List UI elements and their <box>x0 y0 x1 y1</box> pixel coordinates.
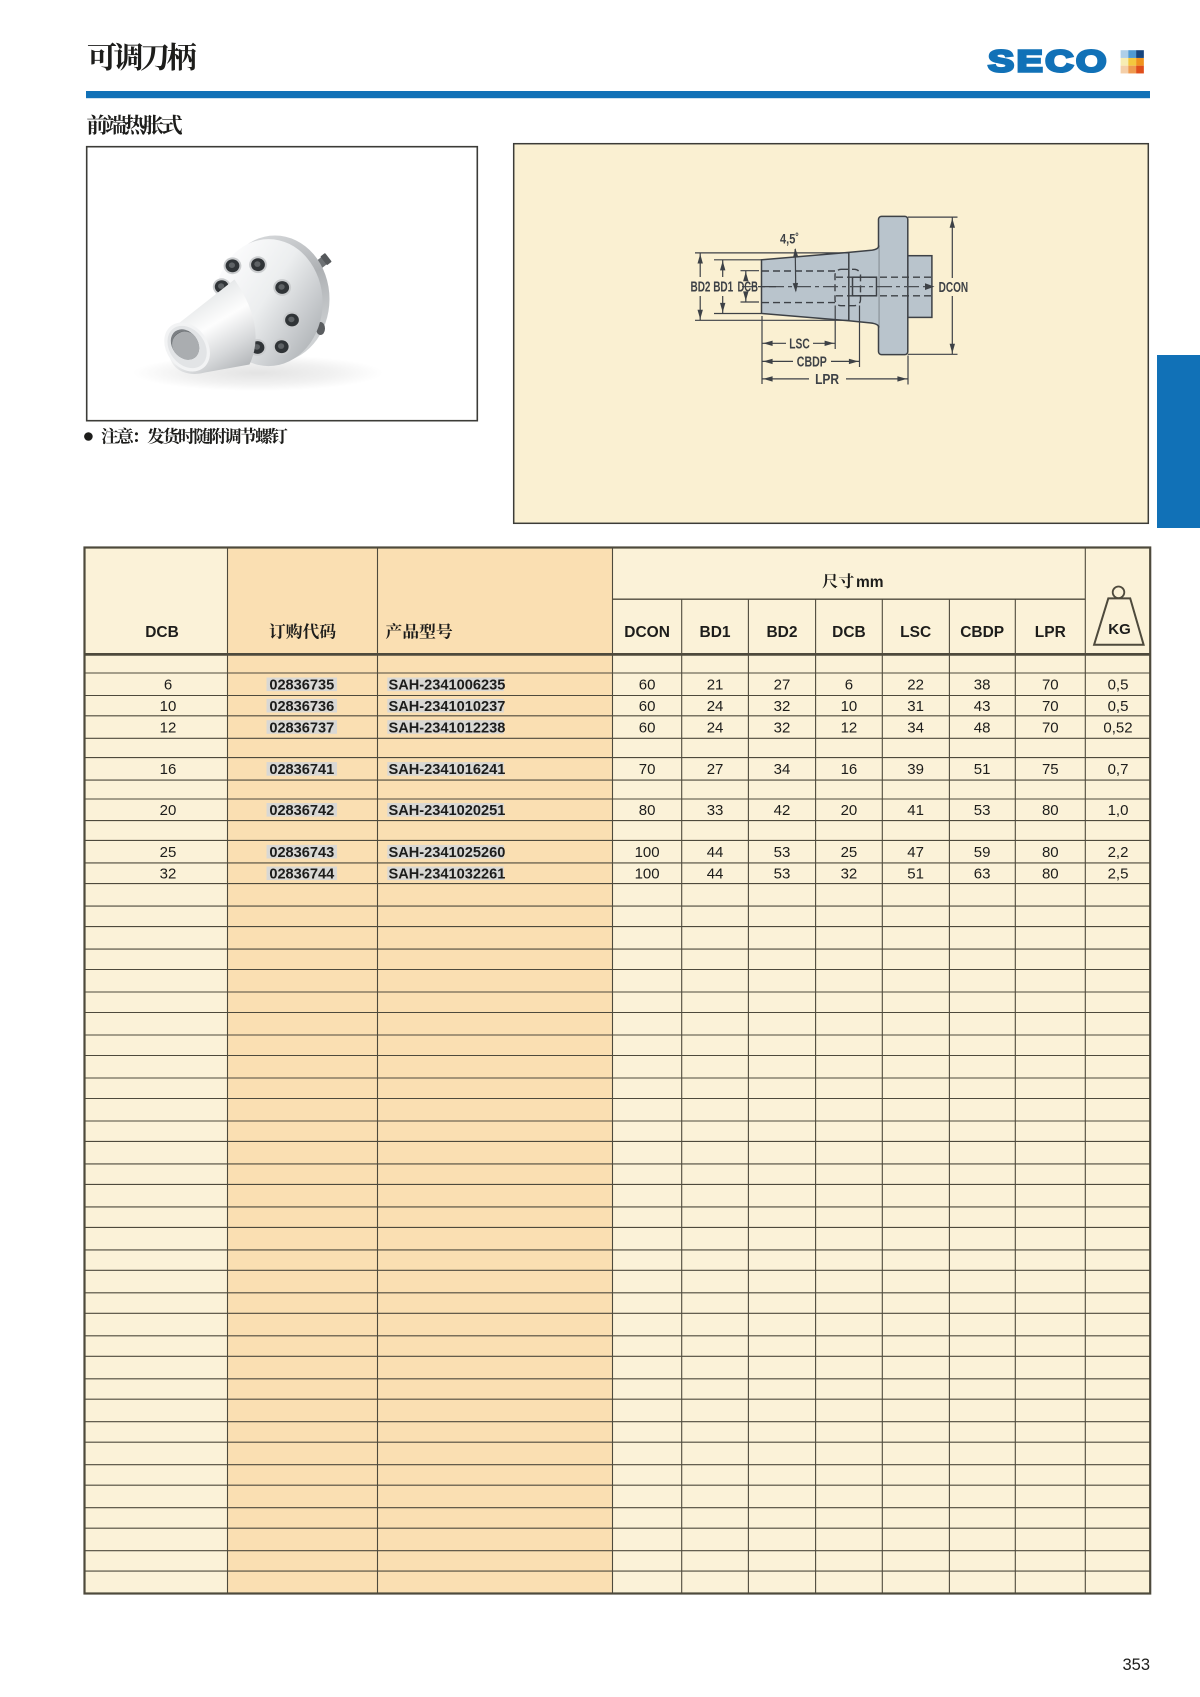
svg-text:33: 33 <box>707 802 724 819</box>
svg-text:2,2: 2,2 <box>1108 844 1129 861</box>
svg-text:LSC: LSC <box>789 336 810 352</box>
svg-text:LPR: LPR <box>1035 624 1066 641</box>
svg-text:59: 59 <box>974 844 991 861</box>
svg-text:0,7: 0,7 <box>1108 761 1129 778</box>
svg-text:02836737: 02836737 <box>269 720 334 736</box>
svg-text:32: 32 <box>774 719 791 736</box>
svg-text:80: 80 <box>639 802 656 819</box>
svg-text:75: 75 <box>1042 761 1059 778</box>
svg-text:63: 63 <box>974 866 991 883</box>
svg-text:02836735: 02836735 <box>269 678 334 694</box>
svg-text:47: 47 <box>907 844 924 861</box>
svg-text:SECO: SECO <box>988 45 1109 79</box>
svg-text:SAH-2341032261: SAH-2341032261 <box>389 867 506 883</box>
svg-text:SAH-2341012238: SAH-2341012238 <box>389 720 506 736</box>
svg-text:27: 27 <box>774 677 791 694</box>
svg-text:SAH-2341020251: SAH-2341020251 <box>389 803 506 819</box>
svg-text:80: 80 <box>1042 802 1059 819</box>
svg-text:34: 34 <box>907 719 924 736</box>
svg-text:2,5: 2,5 <box>1108 866 1129 883</box>
svg-text:53: 53 <box>774 866 791 883</box>
svg-text:CBDP: CBDP <box>960 624 1004 641</box>
svg-text:mm: mm <box>856 574 884 591</box>
svg-text:70: 70 <box>639 761 656 778</box>
svg-text:DCON: DCON <box>939 280 969 296</box>
svg-text:6: 6 <box>845 677 853 694</box>
svg-text:44: 44 <box>707 866 724 883</box>
svg-text:SAH-2341006235: SAH-2341006235 <box>389 678 506 694</box>
svg-text:LPR: LPR <box>815 372 839 388</box>
svg-text:0,5: 0,5 <box>1108 677 1129 694</box>
svg-text:60: 60 <box>639 719 656 736</box>
svg-text:SAH-2341010237: SAH-2341010237 <box>389 699 506 715</box>
svg-text:KG: KG <box>1108 621 1131 638</box>
svg-text:16: 16 <box>841 761 858 778</box>
svg-text:02836741: 02836741 <box>269 762 334 778</box>
svg-text:51: 51 <box>974 761 991 778</box>
svg-text:20: 20 <box>841 802 858 819</box>
svg-text:1,0: 1,0 <box>1108 802 1129 819</box>
svg-text:SAH-2341025260: SAH-2341025260 <box>389 845 506 861</box>
svg-text:12: 12 <box>160 719 177 736</box>
svg-text:70: 70 <box>1042 677 1059 694</box>
svg-text:DCB: DCB <box>737 280 758 296</box>
svg-text:80: 80 <box>1042 844 1059 861</box>
svg-text:20: 20 <box>160 802 177 819</box>
svg-text:12: 12 <box>841 719 858 736</box>
svg-text:SAH-2341016241: SAH-2341016241 <box>389 762 506 778</box>
svg-text:32: 32 <box>774 698 791 715</box>
svg-text:34: 34 <box>774 761 791 778</box>
svg-text:24: 24 <box>707 698 724 715</box>
svg-text:02836742: 02836742 <box>269 803 334 819</box>
svg-text:LSC: LSC <box>900 624 931 641</box>
svg-text:70: 70 <box>1042 719 1059 736</box>
svg-text:53: 53 <box>974 802 991 819</box>
svg-text:BD1: BD1 <box>713 280 733 296</box>
svg-text:DCON: DCON <box>624 624 670 641</box>
svg-text:39: 39 <box>907 761 924 778</box>
svg-text:21: 21 <box>707 677 724 694</box>
svg-text:80: 80 <box>1042 866 1059 883</box>
svg-text:31: 31 <box>907 698 924 715</box>
svg-text:60: 60 <box>639 698 656 715</box>
svg-text:48: 48 <box>974 719 991 736</box>
svg-text:60: 60 <box>639 677 656 694</box>
svg-text:38: 38 <box>974 677 991 694</box>
svg-text:10: 10 <box>160 698 177 715</box>
svg-text:02836744: 02836744 <box>269 867 335 883</box>
svg-text:DCB: DCB <box>832 624 866 641</box>
svg-text:42: 42 <box>774 802 791 819</box>
svg-text:02836743: 02836743 <box>269 845 334 861</box>
svg-text:22: 22 <box>907 677 924 694</box>
svg-text:4,5˚: 4,5˚ <box>780 230 799 246</box>
svg-text:BD2: BD2 <box>691 280 711 296</box>
svg-text:53: 53 <box>774 844 791 861</box>
svg-text:100: 100 <box>635 844 660 861</box>
svg-text:32: 32 <box>160 866 177 883</box>
svg-text:BD1: BD1 <box>700 624 731 641</box>
svg-text:DCB: DCB <box>145 624 179 641</box>
svg-text:27: 27 <box>707 761 724 778</box>
svg-text:43: 43 <box>974 698 991 715</box>
svg-text:25: 25 <box>841 844 858 861</box>
svg-text:24: 24 <box>707 719 724 736</box>
svg-text:32: 32 <box>841 866 858 883</box>
svg-text:16: 16 <box>160 761 177 778</box>
svg-text:10: 10 <box>841 698 858 715</box>
svg-text:CBDP: CBDP <box>797 354 827 370</box>
svg-text:51: 51 <box>907 866 924 883</box>
svg-text:100: 100 <box>635 866 660 883</box>
svg-text:25: 25 <box>160 844 177 861</box>
svg-text:353: 353 <box>1122 1656 1150 1674</box>
svg-text:44: 44 <box>707 844 724 861</box>
svg-text:41: 41 <box>907 802 924 819</box>
svg-text:BD2: BD2 <box>766 624 797 641</box>
svg-text:02836736: 02836736 <box>269 699 334 715</box>
svg-text:0,52: 0,52 <box>1103 719 1132 736</box>
svg-text:0,5: 0,5 <box>1108 698 1129 715</box>
svg-text:6: 6 <box>164 677 172 694</box>
svg-text:70: 70 <box>1042 698 1059 715</box>
